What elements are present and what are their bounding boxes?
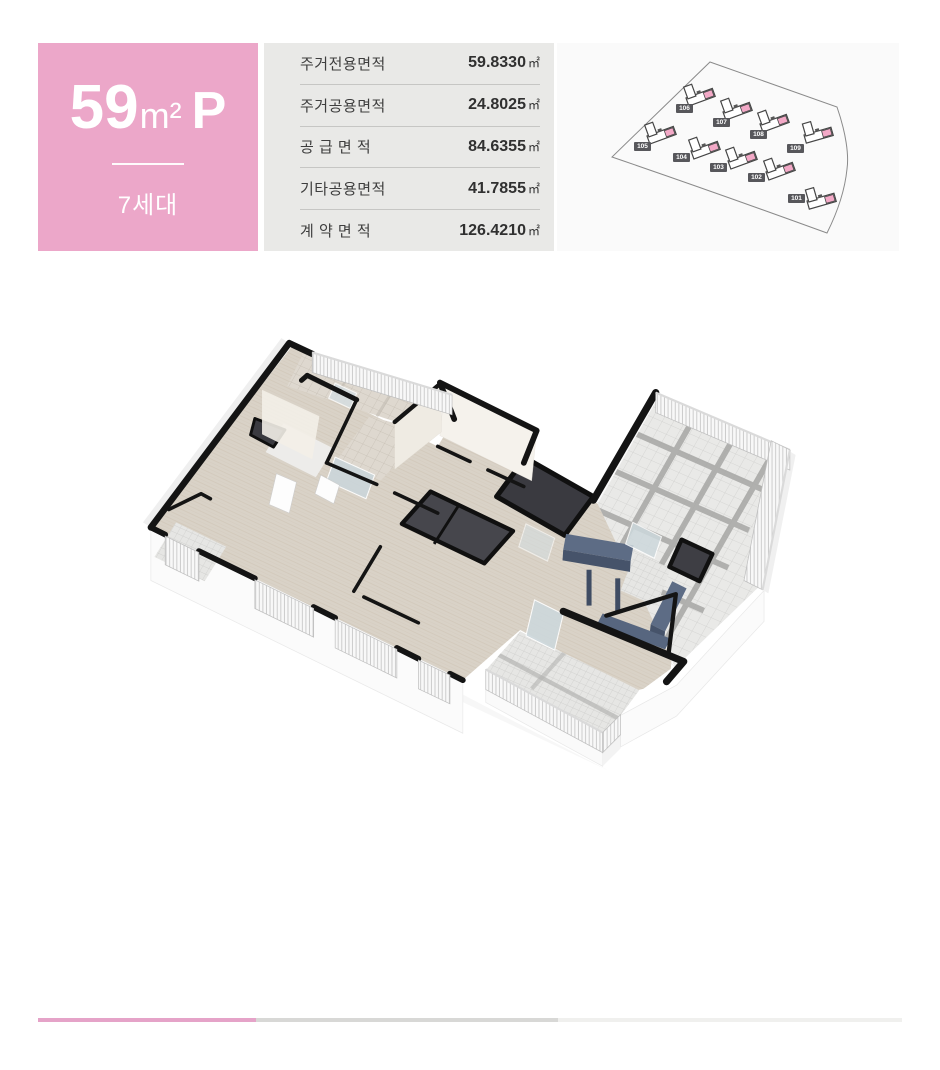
row-label: 공 급 면 적	[300, 136, 371, 157]
unit-type-card: 59 m² P 7세대	[38, 43, 258, 251]
area-spec-table: 주거전용면적 59.8330㎡ 주거공용면적 24.8025㎡ 공 급 면 적 …	[264, 43, 554, 251]
household-count: 7세대	[118, 185, 179, 220]
row-value: 126.4210	[459, 222, 526, 240]
page: 59 m² P 7세대 주거전용면적 59.8330㎡ 주거공용면적 24.80…	[0, 0, 940, 1070]
site-plan-map: 106 107 108 109 105 104 103 102 101	[557, 43, 899, 251]
row-unit: ㎡	[528, 96, 540, 113]
building-badge: 105	[634, 142, 651, 151]
footer-divider	[38, 1018, 902, 1022]
building-badge: 106	[676, 104, 693, 113]
row-value: 84.6355	[468, 138, 526, 156]
card-divider	[112, 163, 184, 165]
table-row: 주거공용면적 24.8025㎡	[300, 85, 540, 127]
row-label: 기타공용면적	[300, 178, 386, 199]
unit-size-unit: m²	[140, 98, 182, 134]
building-badge: 103	[710, 163, 727, 172]
row-label: 주거전용면적	[300, 53, 386, 74]
row-value: 41.7855	[468, 180, 526, 198]
table-row: 계 약 면 적 126.4210㎡	[300, 210, 540, 251]
row-value: 24.8025	[468, 96, 526, 114]
row-unit: ㎡	[528, 180, 540, 197]
building-badge: 107	[713, 118, 730, 127]
unit-size: 59 m² P	[70, 77, 227, 139]
table-row: 공 급 면 적 84.6355㎡	[300, 127, 540, 169]
floor-plan-3d-rendering	[0, 280, 940, 990]
row-unit: ㎡	[528, 138, 540, 155]
footer-segment-pink	[38, 1018, 256, 1022]
row-unit: ㎡	[528, 222, 540, 239]
site-plan-graphic	[557, 43, 899, 251]
building-badge: 104	[673, 153, 690, 162]
building-badge: 101	[788, 194, 805, 203]
row-label: 계 약 면 적	[300, 220, 371, 241]
unit-type-suffix: P	[192, 85, 227, 137]
footer-segment-gray	[256, 1018, 558, 1022]
footer-segment-light	[558, 1018, 902, 1022]
building-badge: 108	[750, 130, 767, 139]
row-unit: ㎡	[528, 54, 540, 71]
unit-size-number: 59	[70, 77, 139, 139]
building-badge: 109	[787, 144, 804, 153]
floor-plan-graphic	[0, 280, 940, 990]
table-row: 주거전용면적 59.8330㎡	[300, 43, 540, 85]
row-value: 59.8330	[468, 54, 526, 72]
building-badge: 102	[748, 173, 765, 182]
table-row: 기타공용면적 41.7855㎡	[300, 168, 540, 210]
row-label: 주거공용면적	[300, 95, 386, 116]
